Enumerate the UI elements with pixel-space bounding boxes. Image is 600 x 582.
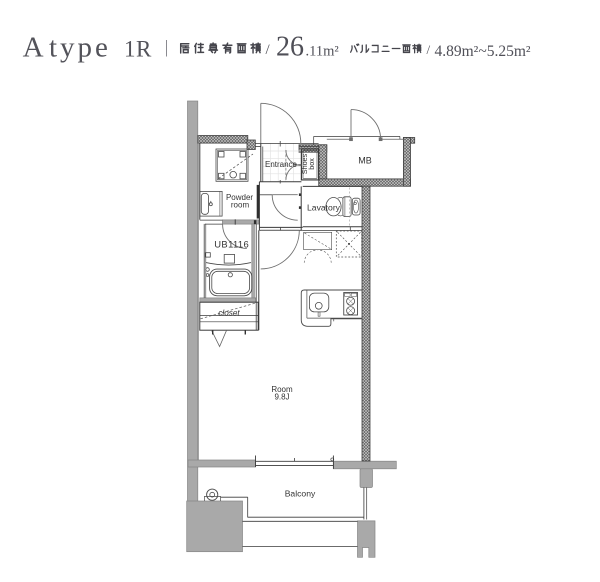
svg-text:1R: 1R: [124, 37, 152, 62]
svg-text:MB: MB: [358, 155, 372, 165]
svg-text:4.89m²~5.25m²: 4.89m²~5.25m²: [435, 43, 531, 60]
svg-text:room: room: [231, 201, 250, 210]
svg-text:26: 26: [276, 32, 304, 63]
svg-text:type: type: [49, 32, 111, 64]
svg-text:Lavatory: Lavatory: [307, 202, 341, 212]
svg-text:/: /: [427, 42, 431, 57]
svg-text:UB1116: UB1116: [214, 238, 249, 249]
svg-text:box: box: [307, 158, 316, 170]
svg-text:Balcony: Balcony: [285, 489, 316, 499]
svg-text:Entrance: Entrance: [265, 160, 298, 169]
svg-text:9.8J: 9.8J: [274, 392, 289, 401]
svg-text:.11m²: .11m²: [306, 44, 340, 60]
svg-text:closet: closet: [218, 309, 240, 318]
svg-text:A: A: [23, 32, 44, 64]
